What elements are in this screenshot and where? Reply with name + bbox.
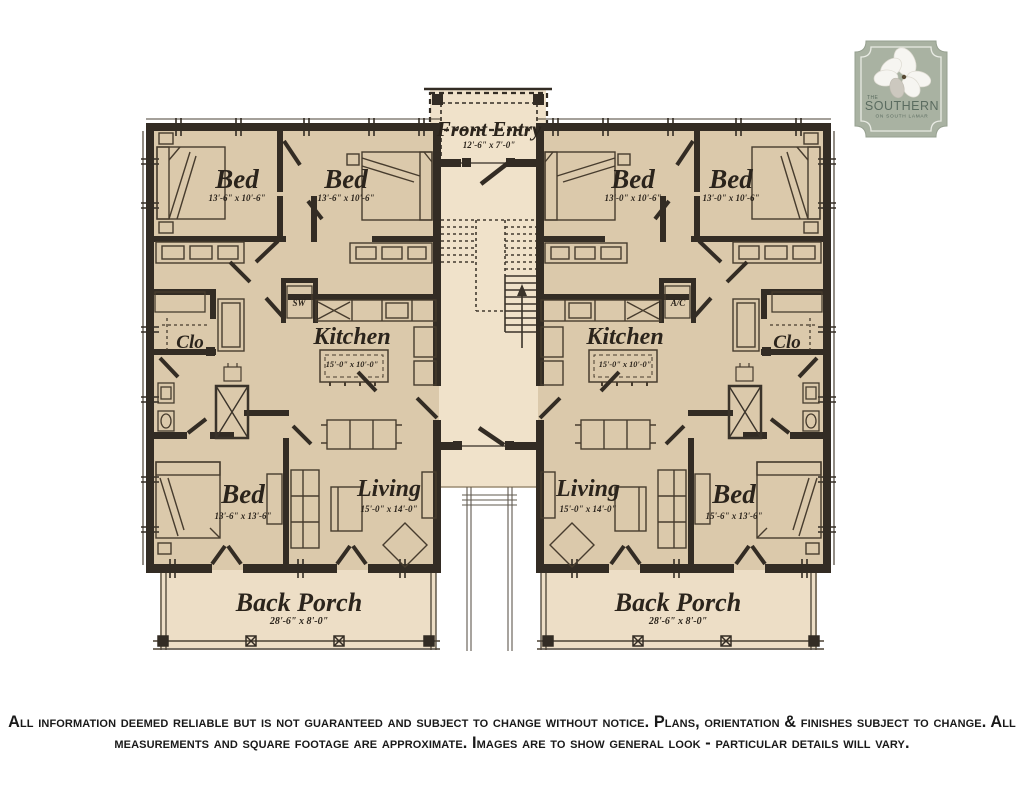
svg-text:28'-6" x 8'-0": 28'-6" x 8'-0" <box>269 616 328 627</box>
svg-text:13'-0" x 10'-6": 13'-0" x 10'-6" <box>703 193 760 203</box>
svg-text:All information deemed reliabl: All information deemed reliable but is n… <box>8 713 1016 731</box>
svg-text:Kitchen: Kitchen <box>585 324 663 350</box>
svg-text:Living: Living <box>356 476 421 502</box>
svg-text:Bed: Bed <box>708 164 753 194</box>
svg-text:15'-6" x 13'-6": 15'-6" x 13'-6" <box>706 511 763 521</box>
svg-text:Clo: Clo <box>176 332 203 353</box>
svg-text:Bed: Bed <box>610 164 655 194</box>
svg-text:measurements and square footag: measurements and square footage are appr… <box>114 734 909 752</box>
svg-text:15'-0" x 14'-0": 15'-0" x 14'-0" <box>560 504 617 514</box>
svg-text:SW: SW <box>292 298 306 308</box>
svg-text:13'-6" x 10'-6": 13'-6" x 10'-6" <box>318 193 375 203</box>
svg-text:Clo: Clo <box>773 332 800 353</box>
svg-text:13'-6" x 13'-6": 13'-6" x 13'-6" <box>215 511 272 521</box>
svg-text:Front Entry: Front Entry <box>436 117 542 141</box>
svg-text:A/C: A/C <box>670 298 687 308</box>
svg-text:15'-0" x 10'-0": 15'-0" x 10'-0" <box>326 360 379 369</box>
svg-text:12'-6" x 7'-0": 12'-6" x 7'-0" <box>463 140 516 150</box>
svg-text:Bed: Bed <box>220 479 265 509</box>
svg-text:Living: Living <box>555 476 620 502</box>
svg-text:Kitchen: Kitchen <box>312 324 390 350</box>
svg-text:Bed: Bed <box>214 164 259 194</box>
svg-text:28'-6" x 8'-0": 28'-6" x 8'-0" <box>648 616 707 627</box>
svg-text:SOUTHERN: SOUTHERN <box>865 99 939 113</box>
svg-text:15'-0" x 14'-0": 15'-0" x 14'-0" <box>361 504 418 514</box>
svg-text:ON SOUTH LAMAR: ON SOUTH LAMAR <box>876 114 929 120</box>
svg-text:13'-6" x 10'-6": 13'-6" x 10'-6" <box>209 193 266 203</box>
svg-text:13'-0" x 10'-6": 13'-0" x 10'-6" <box>605 193 662 203</box>
svg-text:Back Porch: Back Porch <box>235 588 362 617</box>
svg-text:Bed: Bed <box>711 479 756 509</box>
svg-text:Back Porch: Back Porch <box>614 588 741 617</box>
svg-text:Bed: Bed <box>323 164 368 194</box>
svg-text:15'-0" x 10'-0": 15'-0" x 10'-0" <box>599 360 652 369</box>
